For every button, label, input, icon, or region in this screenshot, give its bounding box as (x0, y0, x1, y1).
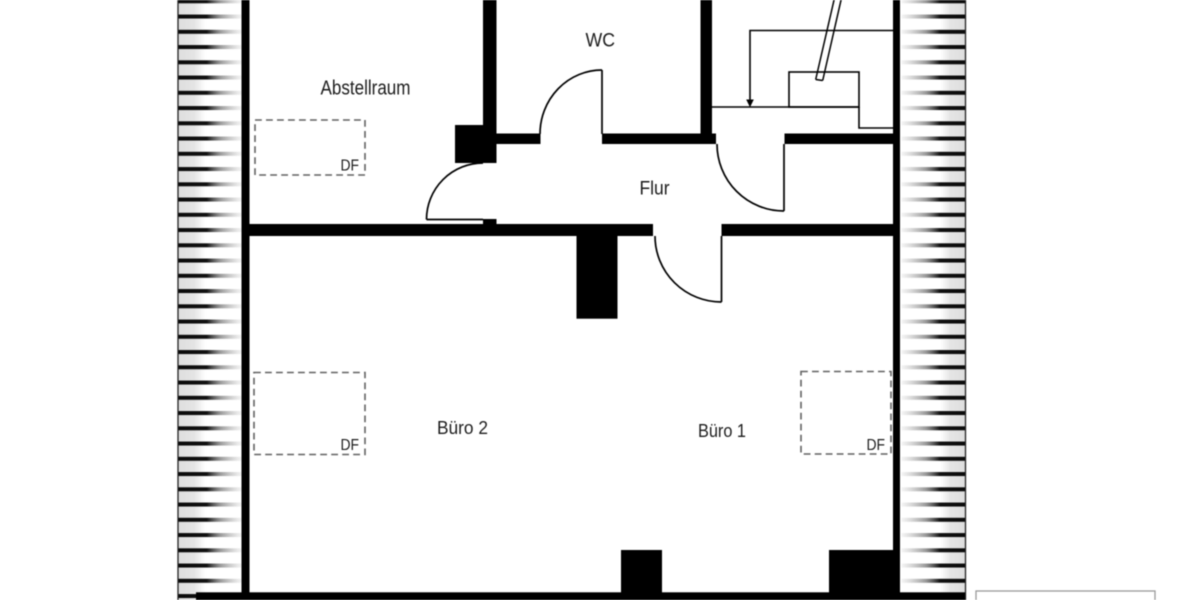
svg-text:DF: DF (341, 158, 360, 175)
svg-text:Büro 2: Büro 2 (437, 418, 488, 438)
svg-text:Büro 1: Büro 1 (698, 421, 746, 441)
svg-text:Flur: Flur (640, 178, 670, 200)
svg-text:Abstellraum: Abstellraum (321, 78, 411, 100)
svg-text:WC: WC (586, 30, 616, 52)
svg-text:DF: DF (867, 437, 886, 454)
svg-text:DF: DF (341, 437, 360, 454)
